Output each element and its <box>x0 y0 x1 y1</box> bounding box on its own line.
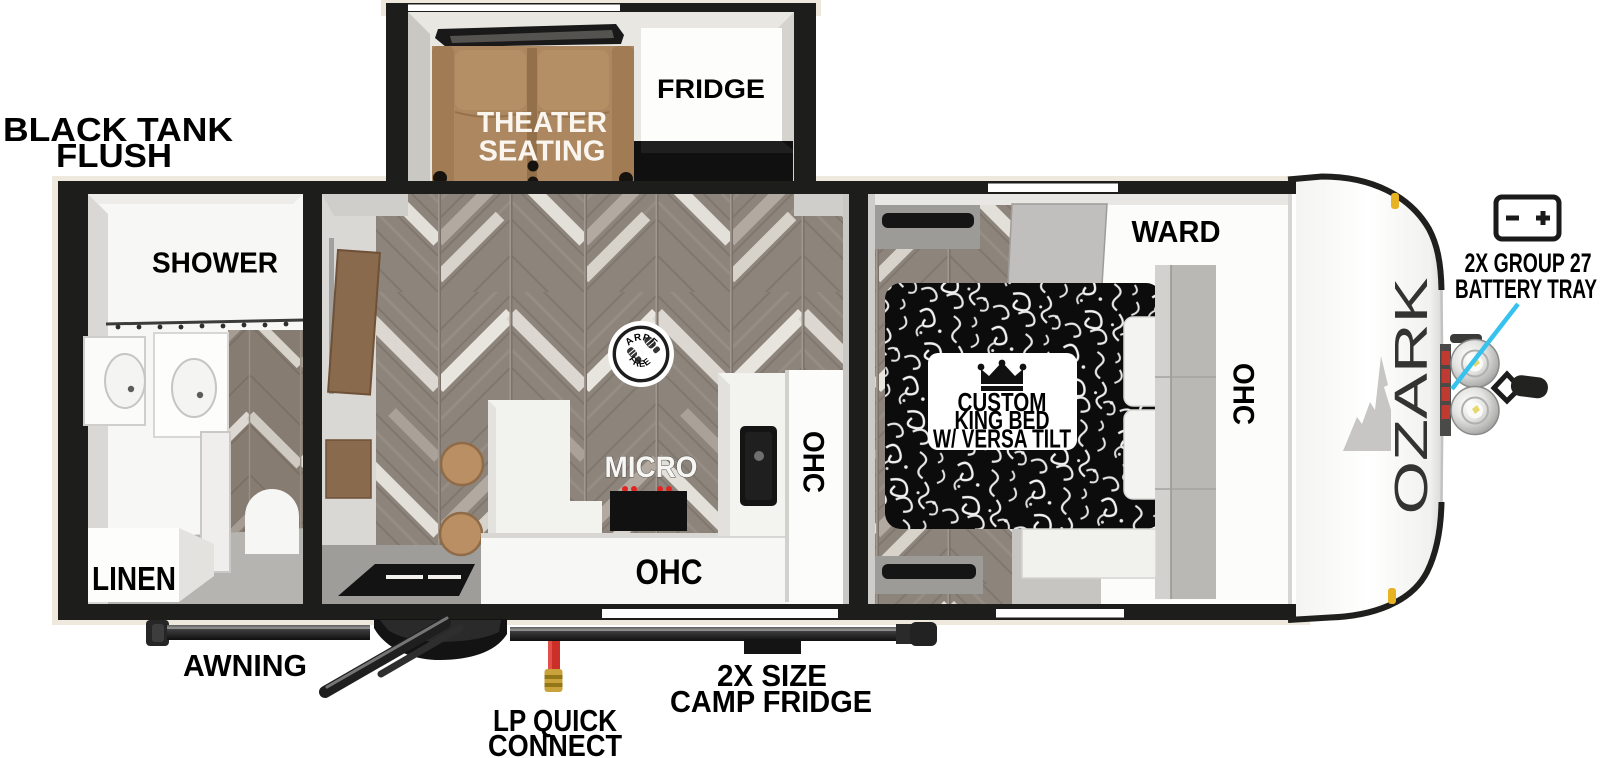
svg-text:FLUSH: FLUSH <box>56 137 172 174</box>
svg-text:SEATING: SEATING <box>479 136 606 168</box>
svg-text:FRIDGE: FRIDGE <box>657 74 765 104</box>
svg-text:LINEN: LINEN <box>92 560 176 597</box>
svg-text:MICRO: MICRO <box>605 451 698 484</box>
svg-text:BATTERY TRAY: BATTERY TRAY <box>1455 274 1597 304</box>
svg-text:OZARK: OZARK <box>1385 277 1437 514</box>
svg-text:THEATER: THEATER <box>477 107 607 139</box>
svg-text:W/ VERSA TILT: W/ VERSA TILT <box>933 424 1071 454</box>
svg-text:CAMP FRIDGE: CAMP FRIDGE <box>670 684 872 719</box>
svg-text:SHOWER: SHOWER <box>152 248 278 280</box>
svg-text:CONNECT: CONNECT <box>488 728 622 758</box>
svg-text:AWNING: AWNING <box>183 648 307 683</box>
svg-text:OHC: OHC <box>1227 363 1260 425</box>
svg-text:WARD: WARD <box>1132 214 1221 249</box>
svg-text:OHC: OHC <box>636 553 703 592</box>
svg-text:OHC: OHC <box>797 431 830 493</box>
